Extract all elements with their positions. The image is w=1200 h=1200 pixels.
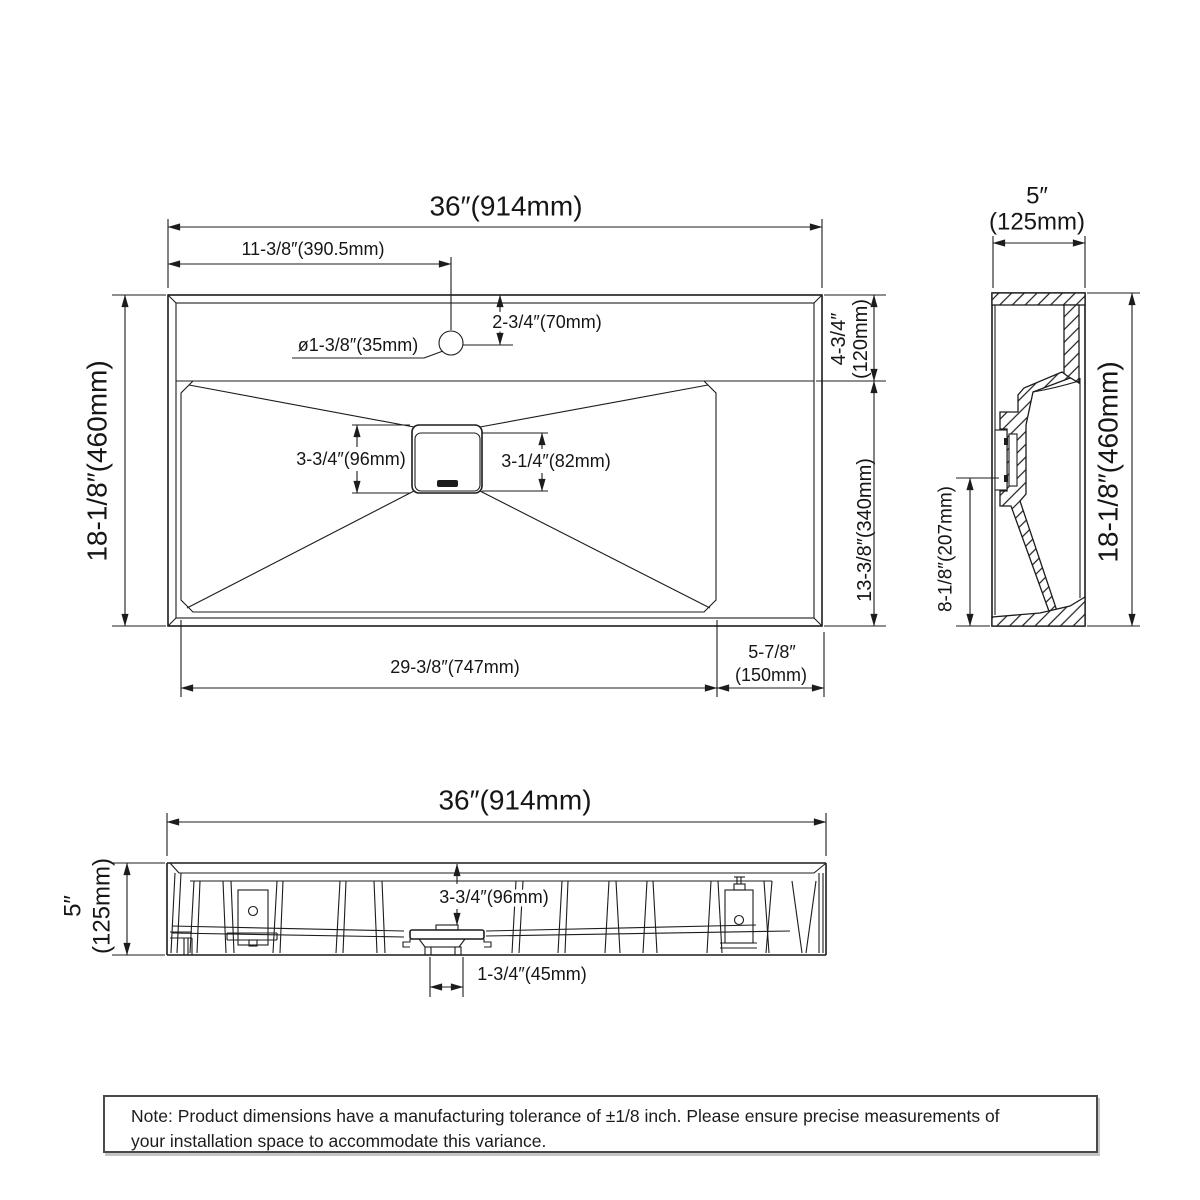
basin-wall-section [1000,372,1070,614]
dim-deck-depth-mm: (120mm) [850,299,872,379]
top-rim-section [992,293,1085,305]
dim-front-width: 36″(914mm) [438,785,591,816]
drain-clip-top [1004,438,1008,445]
side-view: 5″ (125mm) 18-1/8″(460mm) 8-1/8″(207mm) [936,183,1141,627]
overflow-slot [437,480,458,487]
basin-opening [181,381,716,612]
drain-assembly [403,925,491,955]
sink-dimension-drawing: { "top": { "overall_width": "36″(914mm)"… [0,0,1200,1200]
dim-overall-width: 36″(914mm) [429,191,582,222]
dim-drain-drop: 3-3/4″(96mm) [439,887,548,907]
dim-basin-width: 29-3/8″(747mm) [390,657,519,677]
drawing-canvas: 36″(914mm) 11-3/8″(390.5mm) 2-3/4″(70mm)… [0,0,1200,1200]
drain-pipe-slot [1009,434,1017,486]
dim-drain-outlet: 1-3/4″(45mm) [477,964,586,984]
bottom-section [992,597,1085,626]
rear-wall-section [1064,305,1079,383]
dim-front-height-in: 5″ [60,895,87,917]
dim-right-deck-in: 5-7/8″ [748,642,796,662]
mounting-bracket-left [227,890,277,946]
dim-front-height-mm: (125mm) [89,858,116,954]
bracket-hole-right [735,916,744,925]
front-view: 36″(914mm) 5″ (125mm) 3-3/4″(96mm) 1-3/4… [60,785,827,998]
basin-slope-diagonals [187,385,710,608]
dim-basin-depth: 13-3/8″(340mm) [854,458,876,602]
dim-drain-inner: 3-1/4″(82mm) [501,451,610,471]
tolerance-note-line1: Note: Product dimensions have a manufact… [131,1104,1078,1129]
dim-side-height: 18-1/8″(460mm) [1093,361,1124,562]
mounting-bracket-right [720,877,757,948]
dim-faucet-setback: 2-3/4″(70mm) [492,312,601,332]
dim-drain-outer: 3-3/4″(96mm) [296,449,405,469]
dim-faucet-hole: ø1-3/8″(35mm) [298,335,418,355]
top-view: 36″(914mm) 11-3/8″(390.5mm) 2-3/4″(70mm)… [82,191,887,698]
dim-drain-center-height: 8-1/8″(207mm) [936,486,957,612]
tolerance-note: Note: Product dimensions have a manufact… [103,1095,1098,1153]
tolerance-note-line2: your installation space to accommodate t… [131,1129,1078,1154]
dim-right-deck-mm: (150mm) [735,665,807,685]
bracket-hole-left [249,907,258,916]
top-view-dimensions: 36″(914mm) 11-3/8″(390.5mm) 2-3/4″(70mm)… [82,191,887,698]
top-view-inner-rim [176,303,814,618]
dim-faucet-from-left: 11-3/8″(390.5mm) [241,239,384,259]
dim-overall-depth: 18-1/8″(460mm) [82,360,113,561]
dim-side-depth-mm: (125mm) [989,209,1085,236]
dim-deck-depth-in: 4-3/4″ [828,313,850,366]
front-outline [167,863,826,955]
drain-clip-bottom [1004,475,1008,482]
dim-side-depth-in: 5″ [1026,183,1048,210]
